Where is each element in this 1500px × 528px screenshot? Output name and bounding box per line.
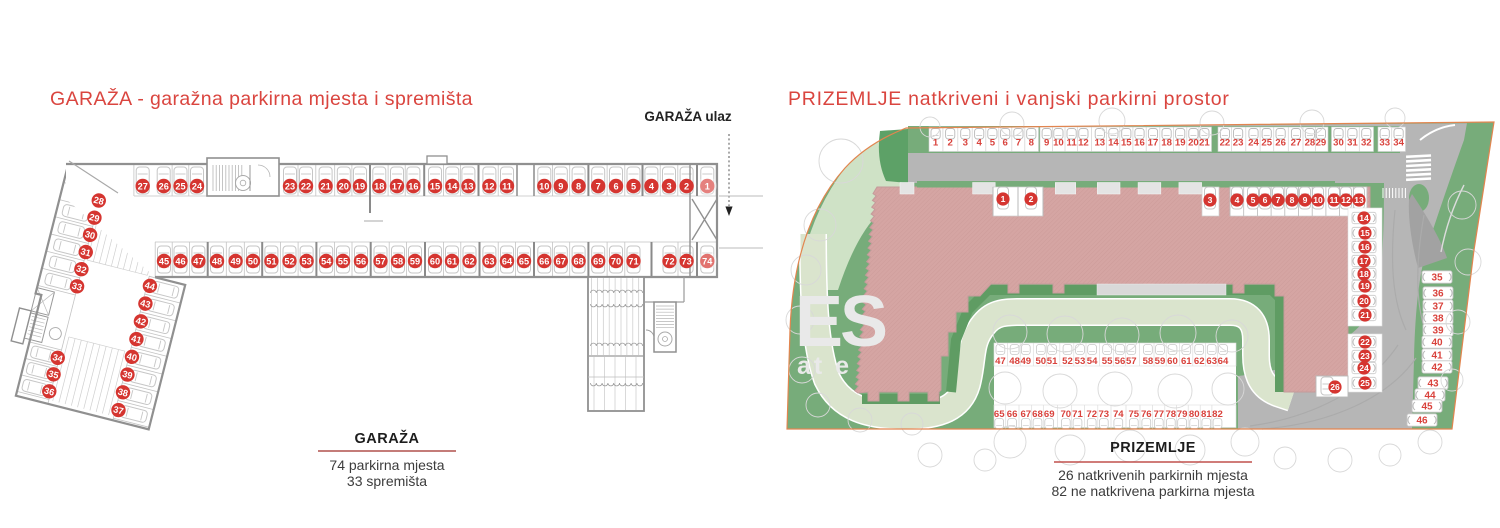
svg-text:20: 20	[1359, 296, 1369, 306]
svg-text:23: 23	[285, 181, 295, 191]
svg-text:12: 12	[484, 181, 494, 191]
svg-text:67: 67	[556, 256, 566, 266]
svg-text:47: 47	[995, 356, 1006, 367]
svg-text:31: 31	[1347, 138, 1358, 149]
svg-text:73: 73	[681, 256, 691, 266]
svg-text:12: 12	[1341, 195, 1351, 205]
svg-text:69: 69	[1044, 409, 1055, 420]
svg-text:23: 23	[1233, 138, 1244, 149]
svg-text:72: 72	[1086, 409, 1097, 420]
svg-text:81: 81	[1201, 409, 1212, 420]
svg-text:45: 45	[159, 256, 169, 266]
svg-text:58: 58	[1143, 356, 1154, 367]
svg-text:25: 25	[1261, 138, 1272, 149]
svg-text:27: 27	[138, 181, 148, 191]
svg-text:64: 64	[502, 256, 513, 266]
svg-text:9: 9	[558, 181, 563, 191]
svg-text:4: 4	[1235, 195, 1240, 205]
svg-text:58: 58	[393, 256, 403, 266]
svg-text:20: 20	[1188, 138, 1199, 149]
svg-text:54: 54	[1087, 356, 1098, 367]
svg-text:24: 24	[1248, 138, 1259, 149]
svg-text:27: 27	[1291, 138, 1302, 149]
svg-text:53: 53	[301, 256, 311, 266]
svg-text:6: 6	[1003, 138, 1008, 149]
svg-text:26 natkrivenih parkirnih mjest: 26 natkrivenih parkirnih mjesta	[1058, 467, 1248, 483]
svg-text:2: 2	[1029, 194, 1034, 204]
svg-text:50: 50	[248, 256, 258, 266]
svg-text:57: 57	[375, 256, 385, 266]
svg-text:1: 1	[933, 138, 939, 149]
svg-text:55: 55	[1102, 356, 1113, 367]
svg-text:43: 43	[1427, 379, 1439, 390]
svg-text:46: 46	[1416, 416, 1428, 427]
svg-text:68: 68	[1032, 409, 1043, 420]
svg-text:13: 13	[463, 181, 473, 191]
svg-text:5: 5	[990, 138, 996, 149]
svg-text:64: 64	[1218, 356, 1229, 367]
svg-text:16: 16	[408, 181, 418, 191]
svg-text:15: 15	[1360, 228, 1370, 238]
svg-text:47: 47	[193, 256, 203, 266]
svg-text:7: 7	[1016, 138, 1021, 149]
svg-text:8: 8	[1290, 195, 1295, 205]
svg-text:12: 12	[1078, 138, 1089, 149]
svg-text:11: 11	[1067, 138, 1078, 149]
svg-text:11: 11	[502, 181, 512, 191]
svg-text:17: 17	[1148, 138, 1159, 149]
svg-text:6: 6	[1263, 195, 1268, 205]
svg-text:7: 7	[1276, 195, 1281, 205]
svg-text:70: 70	[1060, 409, 1071, 420]
svg-text:5: 5	[1251, 195, 1256, 205]
svg-text:45: 45	[1421, 402, 1433, 413]
svg-text:33: 33	[1379, 138, 1390, 149]
svg-text:82 ne natkrivena parkirna mjes: 82 ne natkrivena parkirna mjesta	[1051, 483, 1254, 499]
svg-text:18: 18	[374, 181, 384, 191]
svg-text:74: 74	[1113, 409, 1124, 420]
svg-text:9: 9	[1044, 138, 1049, 149]
svg-text:2: 2	[684, 181, 689, 191]
svg-text:60: 60	[1167, 356, 1178, 367]
svg-text:11: 11	[1329, 195, 1338, 205]
svg-text:ES: ES	[795, 282, 886, 362]
svg-text:28: 28	[1305, 138, 1316, 149]
svg-text:77: 77	[1153, 409, 1164, 420]
svg-text:63: 63	[1206, 356, 1217, 367]
svg-text:67: 67	[1020, 409, 1031, 420]
svg-text:62: 62	[1194, 356, 1205, 367]
svg-text:13: 13	[1094, 138, 1105, 149]
svg-text:7: 7	[596, 181, 601, 191]
svg-text:54: 54	[321, 256, 332, 266]
svg-text:10: 10	[1313, 195, 1323, 205]
svg-text:13: 13	[1354, 195, 1364, 205]
svg-text:21: 21	[1199, 138, 1210, 149]
svg-text:23: 23	[1360, 351, 1370, 361]
svg-text:26: 26	[159, 181, 169, 191]
svg-text:4: 4	[649, 181, 655, 191]
svg-text:39: 39	[1432, 326, 1444, 337]
svg-text:PRIZEMLJE: PRIZEMLJE	[1110, 440, 1196, 456]
svg-text:78: 78	[1165, 409, 1176, 420]
svg-text:18: 18	[1161, 138, 1172, 149]
svg-text:52: 52	[284, 256, 294, 266]
svg-text:17: 17	[1359, 256, 1369, 266]
svg-text:72: 72	[664, 256, 674, 266]
svg-text:16: 16	[1134, 138, 1145, 149]
svg-text:80: 80	[1189, 409, 1200, 420]
svg-text:21: 21	[1360, 310, 1370, 320]
svg-text:3: 3	[666, 181, 671, 191]
svg-text:60: 60	[430, 256, 440, 266]
svg-text:76: 76	[1141, 409, 1152, 420]
svg-text:4: 4	[977, 138, 983, 149]
svg-text:20: 20	[339, 181, 349, 191]
svg-text:68: 68	[573, 256, 583, 266]
svg-text:49: 49	[230, 256, 240, 266]
svg-text:40: 40	[1431, 338, 1443, 349]
svg-text:53: 53	[1075, 356, 1086, 367]
svg-text:3: 3	[963, 138, 968, 149]
svg-text:52: 52	[1062, 356, 1073, 367]
svg-text:38: 38	[1432, 314, 1444, 325]
svg-text:59: 59	[1155, 356, 1166, 367]
svg-text:10: 10	[1053, 138, 1064, 149]
svg-text:46: 46	[175, 256, 185, 266]
svg-text:15: 15	[1121, 138, 1132, 149]
svg-text:61: 61	[447, 256, 457, 266]
svg-text:24: 24	[192, 181, 203, 191]
svg-text:34: 34	[1393, 138, 1404, 149]
svg-text:73: 73	[1098, 409, 1109, 420]
svg-text:71: 71	[628, 256, 638, 266]
svg-text:57: 57	[1126, 356, 1137, 367]
svg-text:25: 25	[1360, 378, 1370, 388]
svg-text:66: 66	[1007, 409, 1018, 420]
svg-text:48: 48	[1009, 356, 1020, 367]
svg-text:17: 17	[392, 181, 402, 191]
svg-text:61: 61	[1181, 356, 1192, 367]
svg-text:at e: at e	[797, 352, 852, 380]
svg-text:22: 22	[1360, 337, 1370, 347]
svg-text:48: 48	[212, 256, 222, 266]
svg-text:50: 50	[1035, 356, 1046, 367]
svg-text:69: 69	[593, 256, 603, 266]
svg-text:10: 10	[539, 181, 549, 191]
svg-text:37: 37	[1432, 302, 1444, 313]
svg-text:32: 32	[1361, 138, 1372, 149]
svg-text:6: 6	[613, 181, 618, 191]
svg-text:75: 75	[1128, 409, 1139, 420]
svg-text:25: 25	[175, 181, 185, 191]
svg-text:GARAŽA - garažna parkirna mjes: GARAŽA - garažna parkirna mjesta i sprem…	[50, 87, 473, 110]
svg-text:18: 18	[1359, 269, 1369, 279]
svg-text:82: 82	[1212, 409, 1223, 420]
svg-text:15: 15	[430, 181, 440, 191]
svg-text:42: 42	[1431, 363, 1443, 374]
svg-text:62: 62	[464, 256, 474, 266]
svg-text:55: 55	[338, 256, 348, 266]
svg-text:3: 3	[1208, 195, 1213, 205]
svg-text:19: 19	[1175, 138, 1186, 149]
svg-text:5: 5	[631, 181, 636, 191]
svg-text:35: 35	[1431, 273, 1443, 284]
svg-text:36: 36	[1432, 289, 1444, 300]
svg-text:65: 65	[519, 256, 529, 266]
svg-text:14: 14	[1108, 138, 1119, 149]
svg-text:41: 41	[1431, 351, 1443, 362]
svg-text:22: 22	[301, 181, 311, 191]
svg-text:59: 59	[410, 256, 420, 266]
svg-text:56: 56	[1115, 356, 1126, 367]
svg-text:19: 19	[1360, 281, 1370, 291]
svg-text:79: 79	[1177, 409, 1188, 420]
svg-text:24: 24	[1359, 363, 1369, 373]
svg-text:30: 30	[1333, 138, 1344, 149]
svg-text:8: 8	[1029, 138, 1035, 149]
svg-text:GARAŽA: GARAŽA	[354, 429, 419, 447]
svg-text:26: 26	[1275, 138, 1286, 149]
svg-text:19: 19	[355, 181, 365, 191]
svg-text:14: 14	[447, 181, 458, 191]
svg-text:65: 65	[994, 409, 1005, 420]
svg-text:21: 21	[320, 181, 330, 191]
svg-text:14: 14	[1359, 213, 1369, 223]
svg-text:PRIZEMLJE natkriveni i vanjski: PRIZEMLJE natkriveni i vanjski parkirni …	[788, 88, 1230, 110]
svg-text:70: 70	[611, 256, 621, 266]
svg-text:29: 29	[1316, 138, 1327, 149]
svg-text:16: 16	[1360, 242, 1370, 252]
svg-text:33 spremišta: 33 spremišta	[347, 473, 427, 489]
svg-text:49: 49	[1020, 356, 1031, 367]
svg-text:8: 8	[576, 181, 581, 191]
svg-text:71: 71	[1072, 409, 1083, 420]
svg-text:22: 22	[1220, 138, 1231, 149]
svg-text:2: 2	[948, 138, 953, 149]
svg-text:63: 63	[484, 256, 494, 266]
svg-text:26: 26	[1330, 382, 1340, 392]
svg-text:56: 56	[356, 256, 366, 266]
svg-text:51: 51	[266, 256, 276, 266]
svg-text:9: 9	[1303, 195, 1308, 205]
svg-text:51: 51	[1047, 356, 1058, 367]
svg-text:66: 66	[539, 256, 549, 266]
svg-text:GARAŽA ulaz: GARAŽA ulaz	[644, 109, 731, 124]
svg-text:1: 1	[1001, 194, 1006, 204]
svg-text:74 parkirna mjesta: 74 parkirna mjesta	[329, 457, 444, 473]
